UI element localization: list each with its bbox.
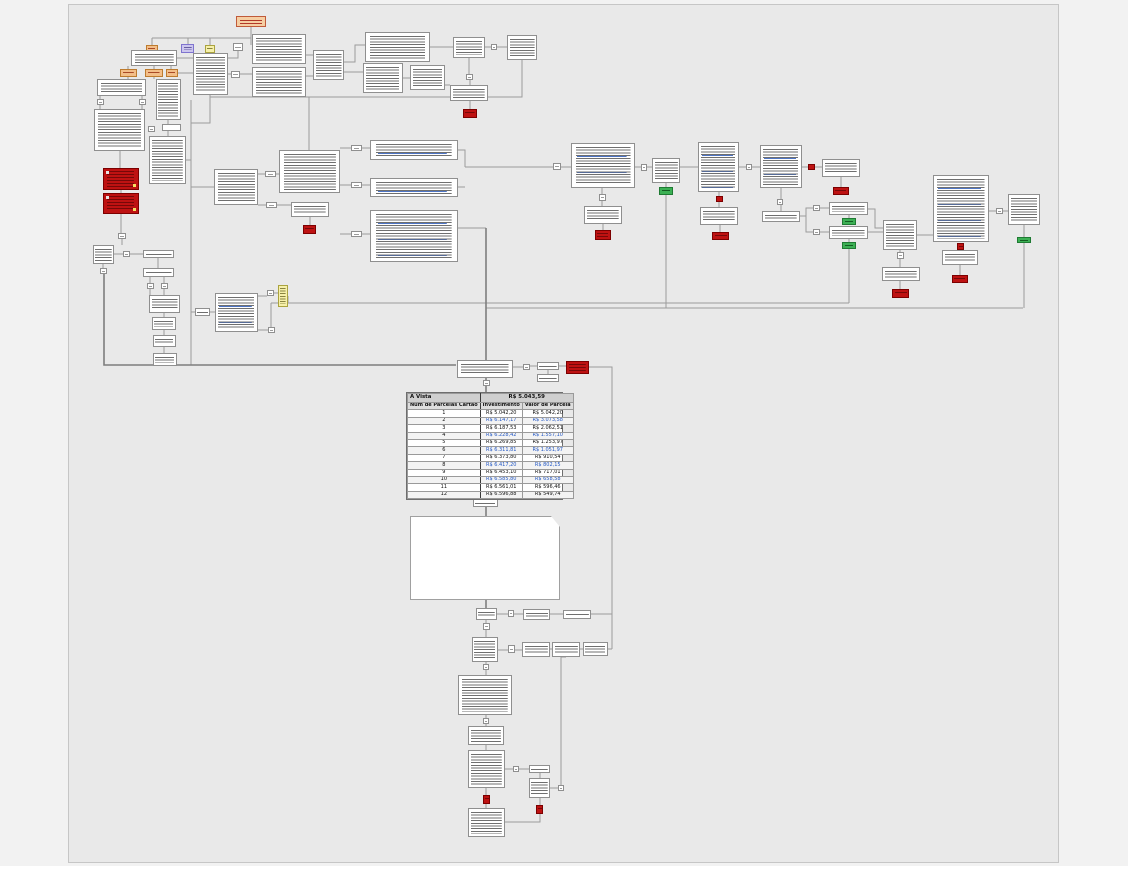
connector-top[interactable] [233, 43, 243, 51]
column-header-2: Investimento [480, 403, 522, 410]
connector-l1n[interactable] [266, 202, 277, 208]
investimento-cell: R$ 6.561,01 [480, 484, 522, 491]
flow-node-r4[interactable] [829, 202, 868, 215]
connector-w-b[interactable] [161, 283, 168, 289]
connector-left-top[interactable] [118, 233, 126, 239]
flow-node-tl4[interactable] [94, 109, 145, 151]
connector-tl-b[interactable] [139, 99, 146, 105]
investimento-cell[interactable]: R$ 6.585,80 [480, 476, 522, 483]
connector-r3[interactable] [777, 199, 783, 205]
connector-w-a[interactable] [147, 283, 154, 289]
tag-yellow-tall[interactable] [278, 285, 288, 307]
table-row: 5R$ 6.269,85R$ 1.253,97 [408, 439, 574, 446]
tag-purple[interactable] [181, 44, 194, 53]
alert-small-1[interactable] [716, 196, 723, 202]
pricing-table[interactable]: A Vista R$ 5.043,59 Num de Parcelas Cart… [406, 392, 563, 500]
alert-box-top[interactable] [463, 109, 477, 118]
alert-box-pre[interactable] [566, 361, 589, 374]
flow-node-w4[interactable] [153, 353, 177, 366]
connector-y[interactable] [267, 290, 274, 296]
flow-node-v2[interactable] [143, 250, 174, 258]
success-box-r4[interactable] [842, 218, 856, 225]
alert-box-b2[interactable] [536, 805, 543, 814]
connector-b4[interactable] [483, 664, 489, 670]
table-row: 11R$ 6.561,01R$ 596,46 [408, 484, 574, 491]
flow-node-m[interactable] [279, 150, 340, 193]
flow-node-tl-right[interactable] [193, 53, 228, 95]
investimento-cell: R$ 5.042,20 [480, 410, 522, 417]
flow-node-rb-below[interactable] [700, 207, 738, 225]
flow-node-b9[interactable] [468, 726, 504, 745]
parcelas-cell: 2 [408, 417, 481, 424]
parcelas-cell: 11 [408, 484, 481, 491]
flow-node-b2[interactable] [523, 609, 550, 620]
flow-node-mid-below[interactable] [584, 206, 622, 224]
connector-fh[interactable] [466, 74, 473, 80]
flow-node-o[interactable] [370, 140, 458, 160]
flow-node-r5[interactable] [829, 226, 868, 239]
connector-r4[interactable] [813, 205, 820, 211]
flow-node-h[interactable] [450, 85, 488, 101]
alert-box-2[interactable] [103, 193, 139, 214]
connector-v1[interactable] [123, 251, 130, 257]
parcelas-cell: 1 [408, 410, 481, 417]
connector-pre-b[interactable] [483, 380, 490, 386]
table-row: 8R$ 6.417,20R$ 802,15 [408, 462, 574, 469]
flow-node-a2[interactable] [252, 67, 306, 97]
alert-box-n[interactable] [303, 225, 316, 234]
flow-node-r3[interactable] [762, 211, 800, 222]
table-row: 2R$ 6.147,17R$ 3.073,58 [408, 417, 574, 424]
table-row: 1R$ 5.042,20R$ 5.042,20 [408, 410, 574, 417]
flow-node-g[interactable] [507, 35, 537, 60]
flow-node-b1[interactable] [476, 608, 497, 620]
flow-node-tl5[interactable] [149, 136, 186, 184]
flow-node-pre-b[interactable] [537, 362, 559, 370]
connector-y2[interactable] [268, 327, 275, 333]
flow-node-t[interactable] [933, 175, 989, 242]
flow-node-center[interactable] [652, 158, 680, 183]
alert-box-1[interactable] [103, 168, 139, 190]
valor-parcela-cell: R$ 717,01 [522, 469, 573, 476]
parcelas-cell: 4 [408, 432, 481, 439]
flow-node-w2[interactable] [152, 317, 176, 330]
flow-node-u[interactable] [1008, 194, 1040, 225]
parcelas-cell: 8 [408, 462, 481, 469]
connector-tl-d[interactable] [231, 71, 240, 78]
flow-node-w1[interactable] [149, 295, 180, 313]
flow-node-p[interactable] [370, 178, 458, 197]
column-header-1: Num de Parcelas Cartão [408, 403, 481, 410]
alert-box-s[interactable] [892, 289, 909, 298]
valor-parcela-cell[interactable]: R$ 658,58 [522, 476, 573, 483]
flow-node-s[interactable] [883, 220, 917, 250]
flow-node-d[interactable] [363, 63, 403, 93]
flow-node-tl3[interactable] [156, 79, 181, 120]
investimento-cell[interactable]: R$ 6.228,42 [480, 432, 522, 439]
flow-node-b6[interactable] [552, 642, 580, 657]
connector-b6[interactable] [513, 766, 519, 772]
flow-node-b13[interactable] [468, 808, 505, 837]
flow-node-s2[interactable] [882, 267, 920, 281]
parcelas-cell: 12 [408, 491, 481, 498]
flow-node-b4[interactable] [472, 637, 498, 662]
connector-mid2[interactable] [599, 194, 606, 201]
flow-node-b[interactable] [313, 50, 344, 80]
connector-pre-a[interactable] [523, 364, 530, 370]
flow-node-t2[interactable] [942, 250, 978, 265]
table-row: 7R$ 6.373,80R$ 910,54 [408, 454, 574, 461]
valor-parcela-cell[interactable]: R$ 3.073,58 [522, 417, 573, 424]
parcelas-cell: 5 [408, 439, 481, 446]
flow-node-l1[interactable] [214, 169, 258, 205]
flow-node-pre-c[interactable] [537, 374, 559, 382]
parcelas-cell: 3 [408, 425, 481, 432]
flow-node-c[interactable] [365, 32, 430, 62]
flow-node-y[interactable] [215, 293, 258, 332]
connector-o[interactable] [351, 145, 362, 151]
valor-parcela-cell: R$ 549,74 [522, 491, 573, 498]
alert-box-r2[interactable] [833, 187, 849, 195]
flow-node-b3[interactable] [563, 610, 591, 619]
flow-node-q[interactable] [370, 210, 458, 262]
connector-top-right[interactable] [491, 44, 497, 50]
table-row: 9R$ 6.453,10R$ 717,01 [408, 469, 574, 476]
connector-b3[interactable] [508, 645, 515, 653]
flow-node-small-mid[interactable] [162, 124, 181, 131]
parcelas-cell: 7 [408, 454, 481, 461]
flow-node-v1[interactable] [93, 245, 114, 264]
tag-orange-a[interactable] [120, 69, 137, 77]
success-box-1[interactable] [659, 187, 673, 195]
valor-parcela-cell[interactable]: R$ 802,15 [522, 462, 573, 469]
flow-node-a[interactable] [252, 34, 306, 64]
flow-node-tl2[interactable] [97, 79, 146, 96]
connector-mid[interactable] [553, 163, 561, 170]
parcelas-cell: 6 [408, 447, 481, 454]
start-node[interactable] [236, 16, 266, 27]
connector-l1m[interactable] [265, 171, 276, 177]
flow-node-b7[interactable] [583, 642, 608, 656]
valor-parcela-cell: R$ 910,54 [522, 454, 573, 461]
investimento-cell: R$ 6.373,80 [480, 454, 522, 461]
connector-b2[interactable] [483, 623, 490, 630]
connector-u[interactable] [996, 208, 1003, 214]
investimento-cell[interactable]: R$ 6.147,17 [480, 417, 522, 424]
page-footer-margin [0, 866, 1128, 885]
flow-node-r1[interactable] [760, 145, 802, 188]
connector-r5[interactable] [813, 229, 820, 235]
valor-parcela-cell: R$ 596,46 [522, 484, 573, 491]
flow-node-x[interactable] [195, 308, 210, 316]
investimento-cell: R$ 6.453,10 [480, 469, 522, 476]
column-header-3: Valor de Parcela [522, 403, 573, 410]
flow-node-pre-table[interactable] [457, 360, 513, 378]
flow-node-r2[interactable] [822, 159, 860, 177]
parcelas-cell: 10 [408, 476, 481, 483]
success-box-u[interactable] [1017, 237, 1031, 243]
flow-node-b10[interactable] [468, 750, 505, 788]
flow-node-b5[interactable] [522, 642, 550, 657]
connector-mid3[interactable] [641, 164, 647, 171]
connector-tl-c[interactable] [148, 126, 155, 132]
installments-table: A Vista R$ 5.043,59 Num de Parcelas Cart… [407, 393, 574, 499]
flow-node-below-table[interactable] [473, 499, 498, 507]
flow-node-n[interactable] [291, 202, 329, 217]
flow-node-b11[interactable] [529, 765, 550, 773]
investimento-cell[interactable]: R$ 6.311,81 [480, 447, 522, 454]
alert-small-2[interactable] [808, 164, 815, 170]
table-row: 6R$ 6.311,81R$ 1.051,97 [408, 447, 574, 454]
connector-q[interactable] [351, 231, 362, 237]
valor-parcela-cell[interactable]: R$ 1.051,97 [522, 447, 573, 454]
cash-value: R$ 5.043,59 [480, 394, 573, 403]
connector-v-left[interactable] [100, 268, 107, 274]
table-row: 10R$ 6.585,80R$ 658,58 [408, 476, 574, 483]
flow-node-e[interactable] [410, 65, 445, 90]
connector-tl-a[interactable] [97, 99, 104, 105]
connector-b5[interactable] [483, 718, 489, 724]
connector-b7[interactable] [558, 785, 564, 791]
success-box-r5[interactable] [842, 242, 856, 249]
flow-node-right-big[interactable] [698, 142, 739, 192]
alert-box-rb[interactable] [712, 232, 729, 240]
investimento-cell: R$ 6.269,85 [480, 439, 522, 446]
table-row: 12R$ 6.596,88R$ 549,74 [408, 491, 574, 498]
tag-yellow[interactable] [205, 45, 215, 53]
connector-p[interactable] [351, 182, 362, 188]
investimento-cell[interactable]: R$ 6.417,20 [480, 462, 522, 469]
tag-orange-b[interactable] [145, 69, 163, 77]
valor-parcela-cell: R$ 1.253,97 [522, 439, 573, 446]
flow-node-tl1[interactable] [131, 50, 177, 66]
flow-node-f[interactable] [453, 37, 485, 58]
alert-box-t[interactable] [952, 275, 968, 283]
valor-parcela-cell: R$ 5.042,20 [522, 410, 573, 417]
valor-parcela-cell[interactable]: R$ 1.557,10 [522, 432, 573, 439]
flow-node-big-mid[interactable] [571, 143, 635, 188]
alert-box-mid[interactable] [595, 230, 611, 240]
alert-box-b1[interactable] [483, 795, 490, 804]
tag-orange-c[interactable] [166, 69, 178, 77]
investimento-cell: R$ 6.596,88 [480, 491, 522, 498]
valor-parcela-cell: R$ 2.062,51 [522, 425, 573, 432]
page-background: A Vista R$ 5.043,59 Num de Parcelas Cart… [0, 0, 1128, 885]
parcelas-cell: 9 [408, 469, 481, 476]
connector-s[interactable] [897, 252, 904, 259]
flow-node-b8[interactable] [458, 675, 512, 715]
connector-b1[interactable] [508, 610, 514, 617]
flow-node-b12[interactable] [529, 778, 550, 798]
table-row: 4R$ 6.228,42R$ 1.557,10 [408, 432, 574, 439]
table-row: 3R$ 6.187,53R$ 2.062,51 [408, 425, 574, 432]
alert-small-t[interactable] [957, 243, 964, 250]
flow-node-v3[interactable] [143, 268, 174, 277]
connector-r1[interactable] [746, 164, 752, 170]
investimento-cell: R$ 6.187,53 [480, 425, 522, 432]
cash-label: A Vista [408, 394, 481, 403]
blank-white-box[interactable] [410, 516, 560, 600]
flow-node-w3[interactable] [153, 335, 176, 347]
